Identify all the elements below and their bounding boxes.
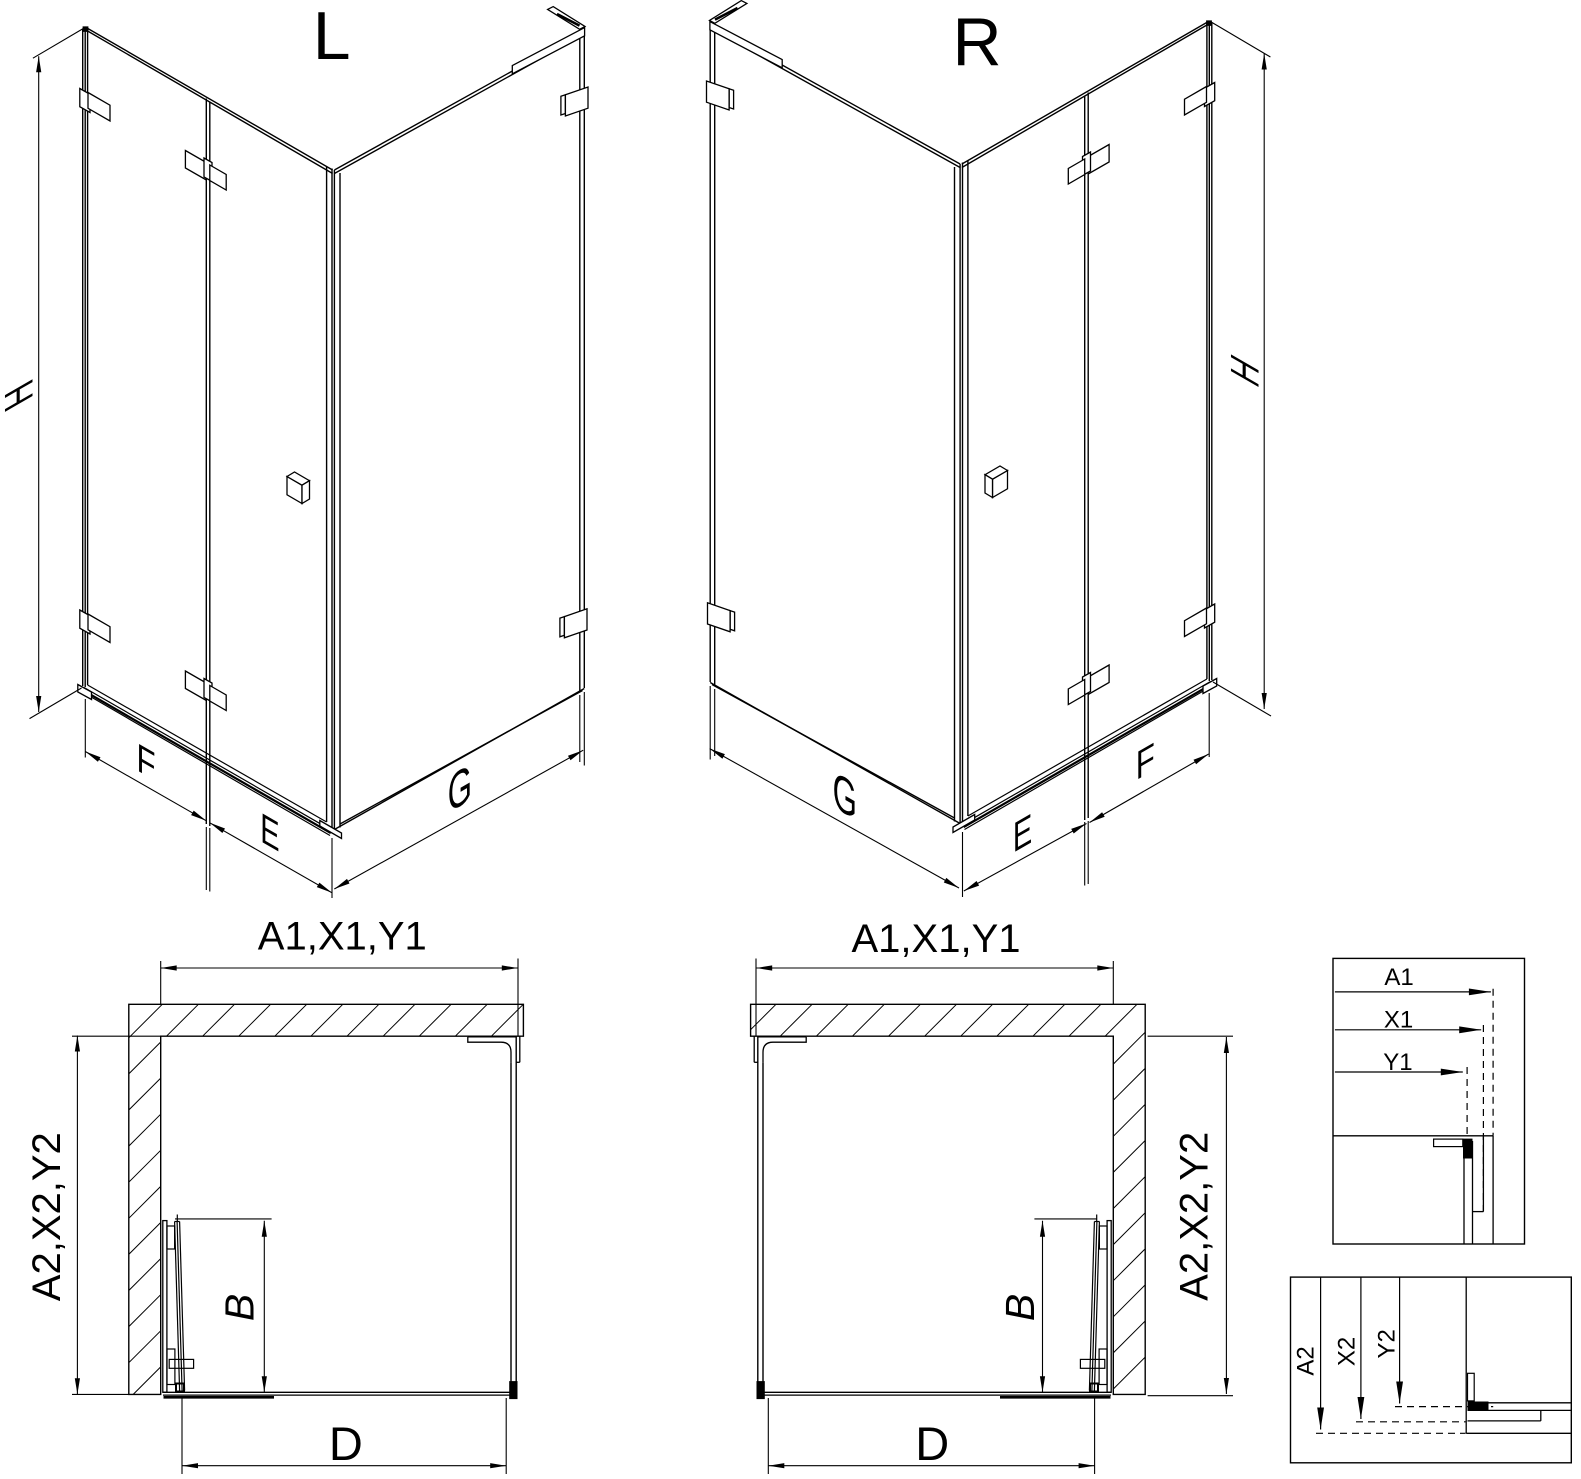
- svg-text:D: D: [329, 1417, 363, 1470]
- svg-text:B: B: [217, 1294, 263, 1321]
- svg-text:D: D: [915, 1417, 949, 1470]
- svg-text:A2: A2: [1293, 1346, 1320, 1375]
- svg-text:A2,X2,Y2: A2,X2,Y2: [25, 1132, 69, 1301]
- svg-text:Y1: Y1: [1383, 1049, 1412, 1076]
- svg-text:X2: X2: [1334, 1337, 1361, 1366]
- svg-text:A2,X2,Y2: A2,X2,Y2: [1173, 1132, 1217, 1301]
- svg-text:X1: X1: [1384, 1006, 1413, 1033]
- svg-text:A1: A1: [1384, 964, 1413, 991]
- svg-text:Y2: Y2: [1374, 1329, 1401, 1358]
- svg-text:A1,X1,Y1: A1,X1,Y1: [258, 915, 427, 959]
- svg-text:R: R: [953, 5, 1002, 81]
- svg-text:L: L: [313, 0, 351, 74]
- svg-text:B: B: [997, 1294, 1043, 1321]
- svg-text:A1,X1,Y1: A1,X1,Y1: [851, 917, 1020, 961]
